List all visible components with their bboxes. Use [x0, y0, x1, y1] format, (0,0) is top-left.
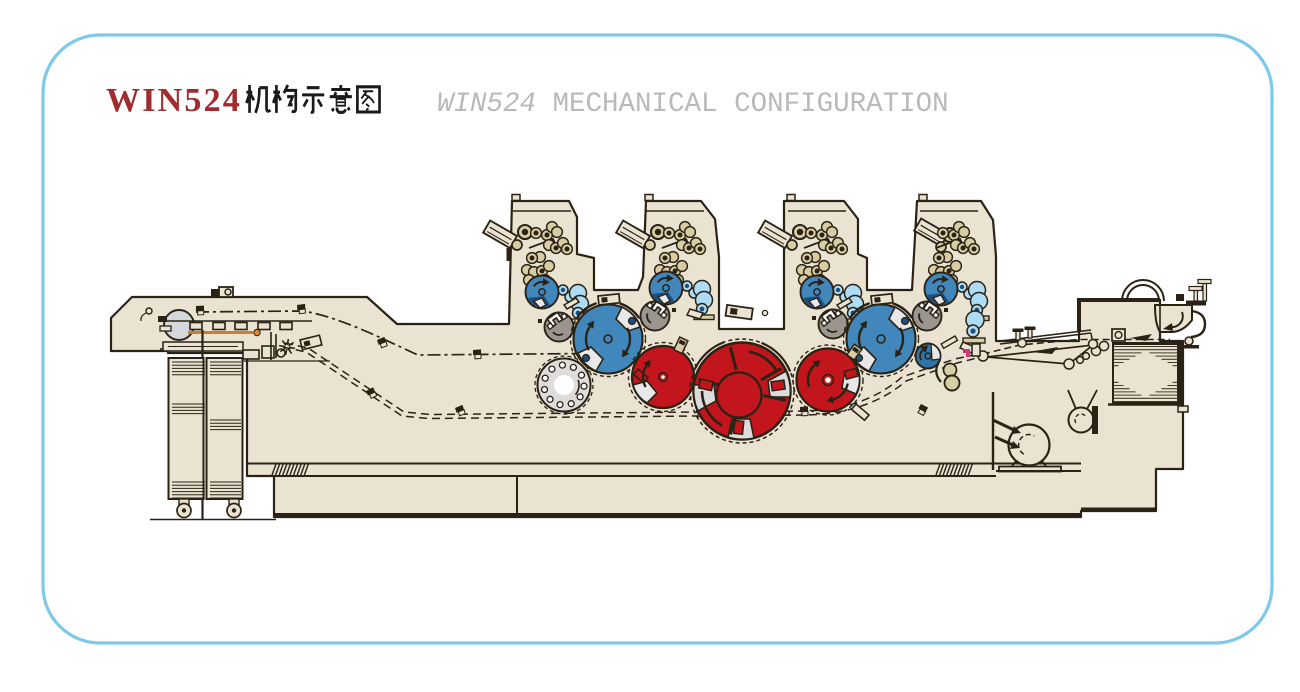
svg-text:WIN524: WIN524: [106, 82, 242, 119]
svg-text:WIN524 MECHANICAL CONFIGURATIO: WIN524 MECHANICAL CONFIGURATION: [437, 89, 949, 120]
